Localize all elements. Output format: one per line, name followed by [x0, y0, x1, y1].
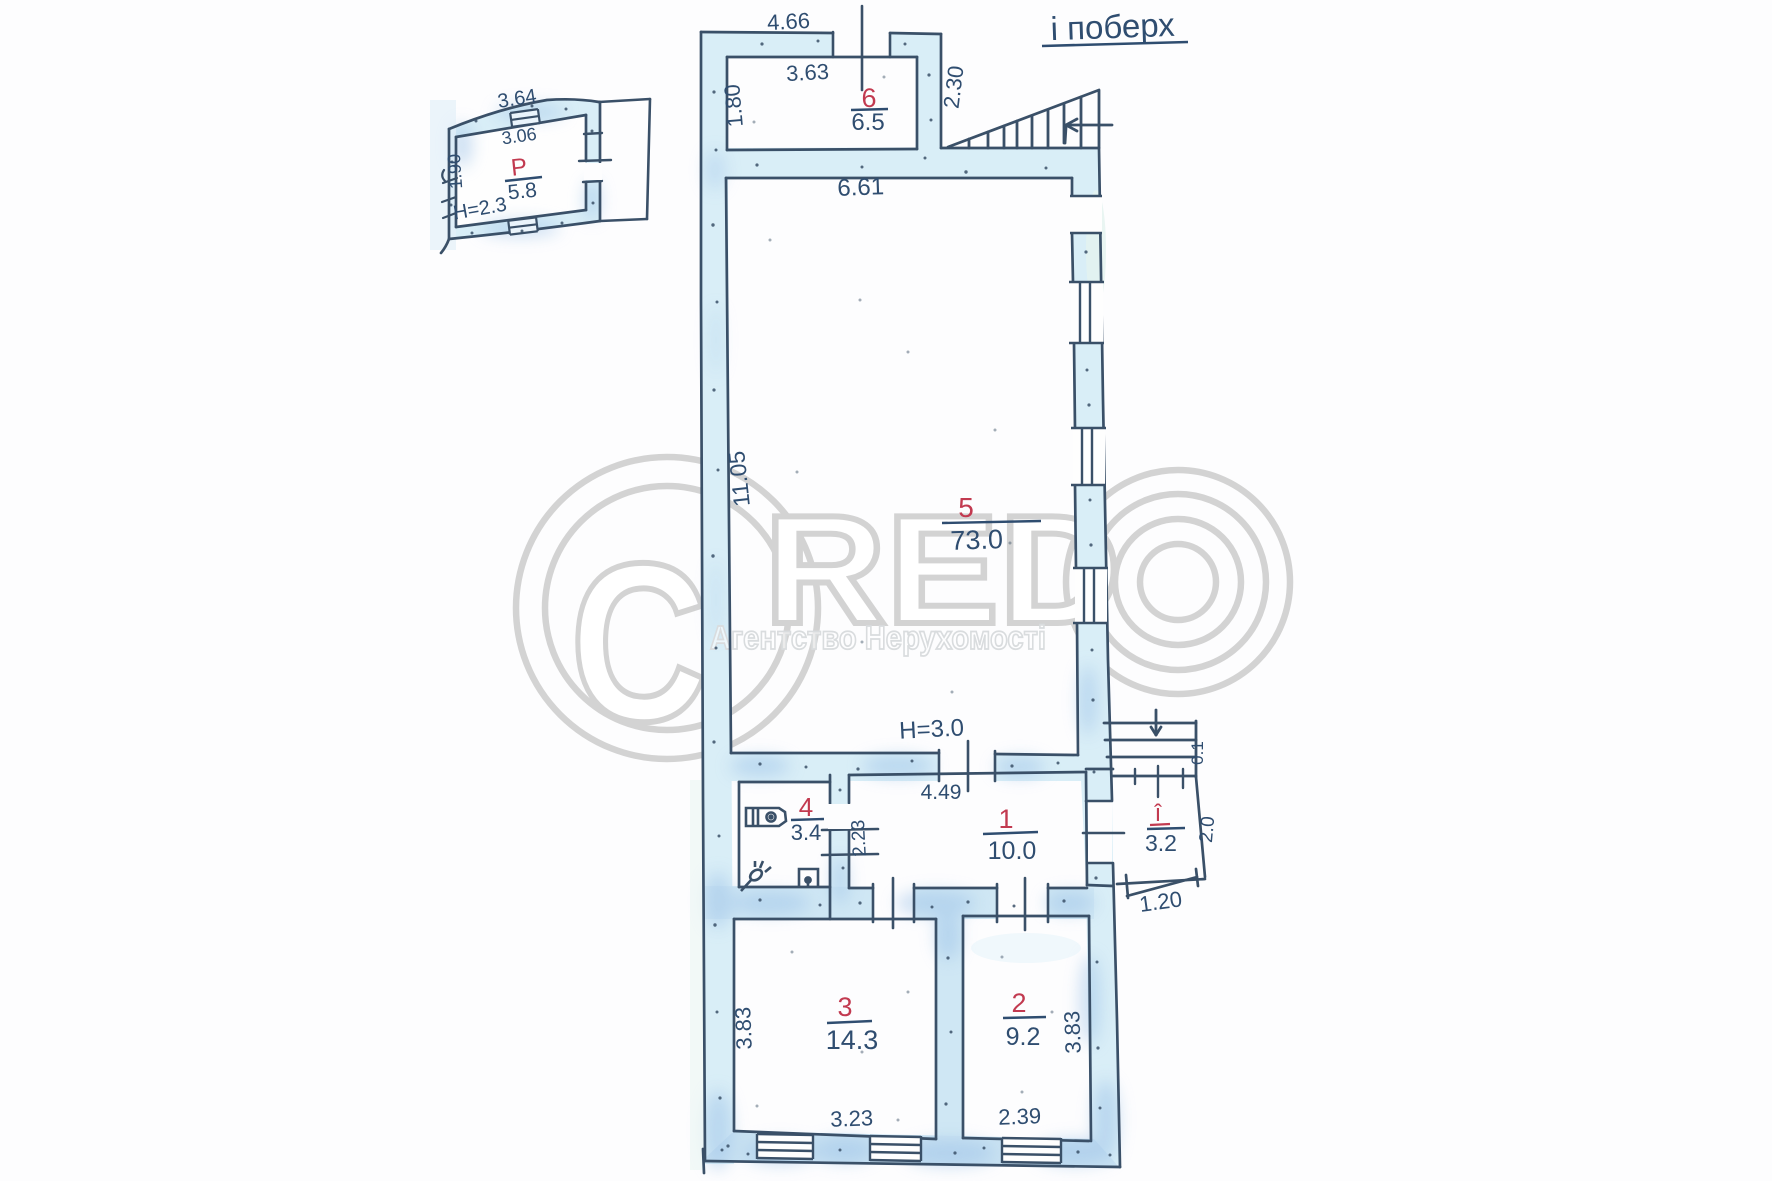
- svg-text:3.83: 3.83: [730, 1006, 756, 1050]
- svg-text:2.0: 2.0: [1196, 815, 1219, 843]
- svg-text:1.20: 1.20: [1138, 886, 1184, 917]
- svg-text:1.80: 1.80: [719, 83, 748, 128]
- svg-text:11.05: 11.05: [723, 450, 755, 508]
- svg-text:4.49: 4.49: [921, 781, 962, 804]
- svg-text:9.2: 9.2: [1006, 1023, 1041, 1051]
- svg-text:4: 4: [799, 792, 813, 822]
- svg-text:73.0: 73.0: [950, 524, 1004, 556]
- svg-text:1: 1: [998, 804, 1013, 834]
- svg-text:10.0: 10.0: [988, 837, 1037, 865]
- svg-text:3.4: 3.4: [791, 820, 822, 845]
- svg-text:6.5: 6.5: [851, 109, 884, 136]
- svg-text:2: 2: [1011, 988, 1026, 1018]
- svg-text:4.66: 4.66: [767, 8, 811, 35]
- svg-text:î: î: [1154, 800, 1163, 827]
- svg-text:2.39: 2.39: [998, 1103, 1042, 1129]
- svg-text:3.2: 3.2: [1145, 830, 1177, 856]
- svg-text:3.23: 3.23: [830, 1105, 874, 1131]
- svg-text:C: C: [570, 516, 708, 768]
- svg-text:Агентство Нерухомості: Агентство Нерухомості: [710, 619, 1046, 656]
- svg-text:14.3: 14.3: [826, 1025, 879, 1055]
- svg-text:5.8: 5.8: [507, 179, 538, 205]
- svg-text:1.90: 1.90: [444, 153, 466, 189]
- svg-text:H=3.0: H=3.0: [899, 714, 965, 744]
- svg-text:3.83: 3.83: [1059, 1010, 1085, 1054]
- svg-text:6.61: 6.61: [837, 173, 885, 202]
- svg-text:0.1: 0.1: [1188, 741, 1207, 765]
- svg-text:і поберх: і поберх: [1050, 6, 1176, 47]
- svg-text:3.63: 3.63: [786, 59, 830, 86]
- svg-text:Р: Р: [510, 153, 529, 182]
- svg-text:3: 3: [837, 992, 852, 1022]
- svg-text:5: 5: [958, 492, 974, 523]
- svg-text:2.30: 2.30: [939, 64, 969, 110]
- svg-text:2.23: 2.23: [848, 819, 871, 857]
